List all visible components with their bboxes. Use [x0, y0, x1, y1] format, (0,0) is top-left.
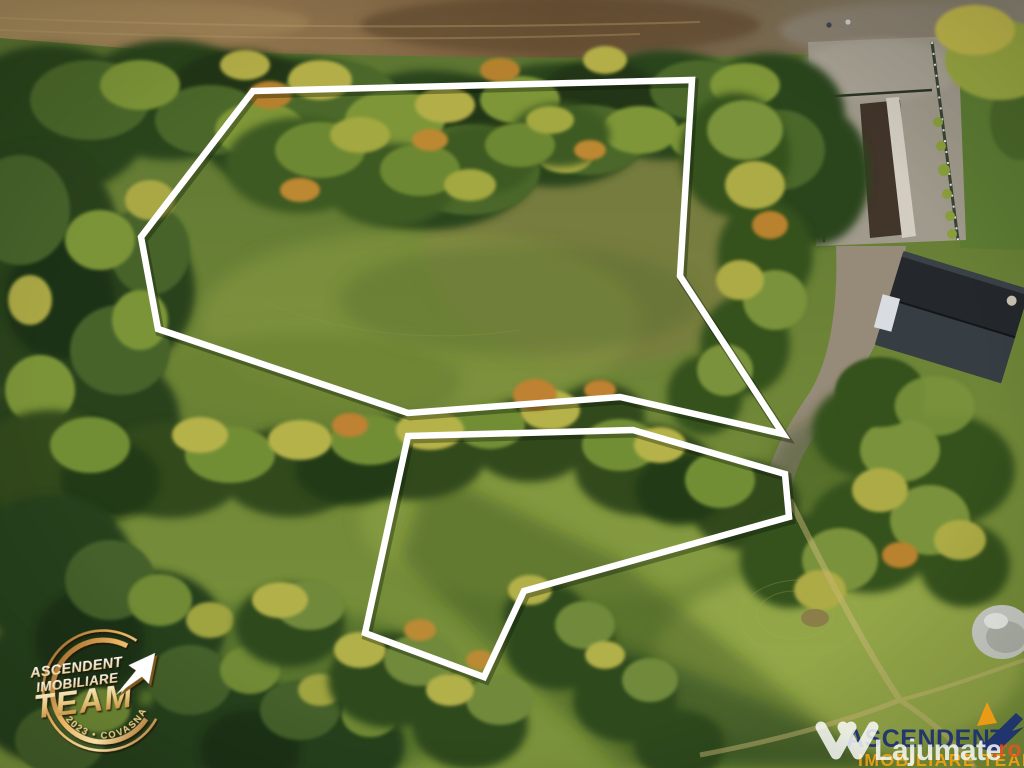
aerial-listing-photo: ASCENDENT IMOBILIARE TEAM 2023 • COVASNA… [0, 0, 1024, 768]
lajumate-tld-text: .ro [992, 736, 1021, 762]
vignette [0, 0, 1024, 768]
lajumate-brand-text: Lajumate [874, 734, 1002, 767]
aerial-photo-canvas: ASCENDENT IMOBILIARE TEAM 2023 • COVASNA… [0, 0, 1024, 768]
